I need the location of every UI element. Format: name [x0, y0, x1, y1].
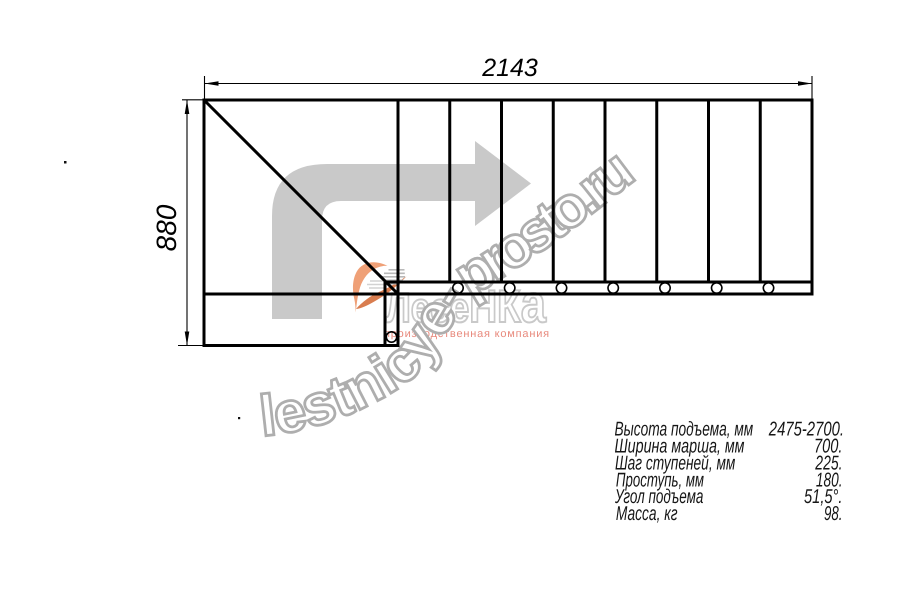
svg-text:Масса, кг: Масса, кг: [616, 503, 678, 525]
svg-text:2143: 2143: [481, 54, 538, 82]
svg-text:880: 880: [151, 204, 182, 251]
svg-text:98.: 98.: [824, 503, 843, 525]
